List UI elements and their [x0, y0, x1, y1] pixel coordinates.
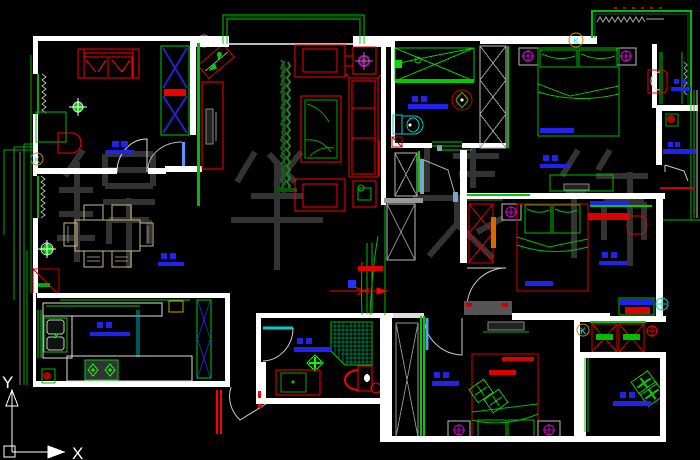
svg-text:Y: Y: [2, 373, 13, 392]
svg-text:K: K: [580, 326, 586, 336]
svg-text:K: K: [34, 155, 40, 165]
svg-text:X: X: [72, 444, 83, 460]
svg-text:K: K: [573, 36, 579, 46]
